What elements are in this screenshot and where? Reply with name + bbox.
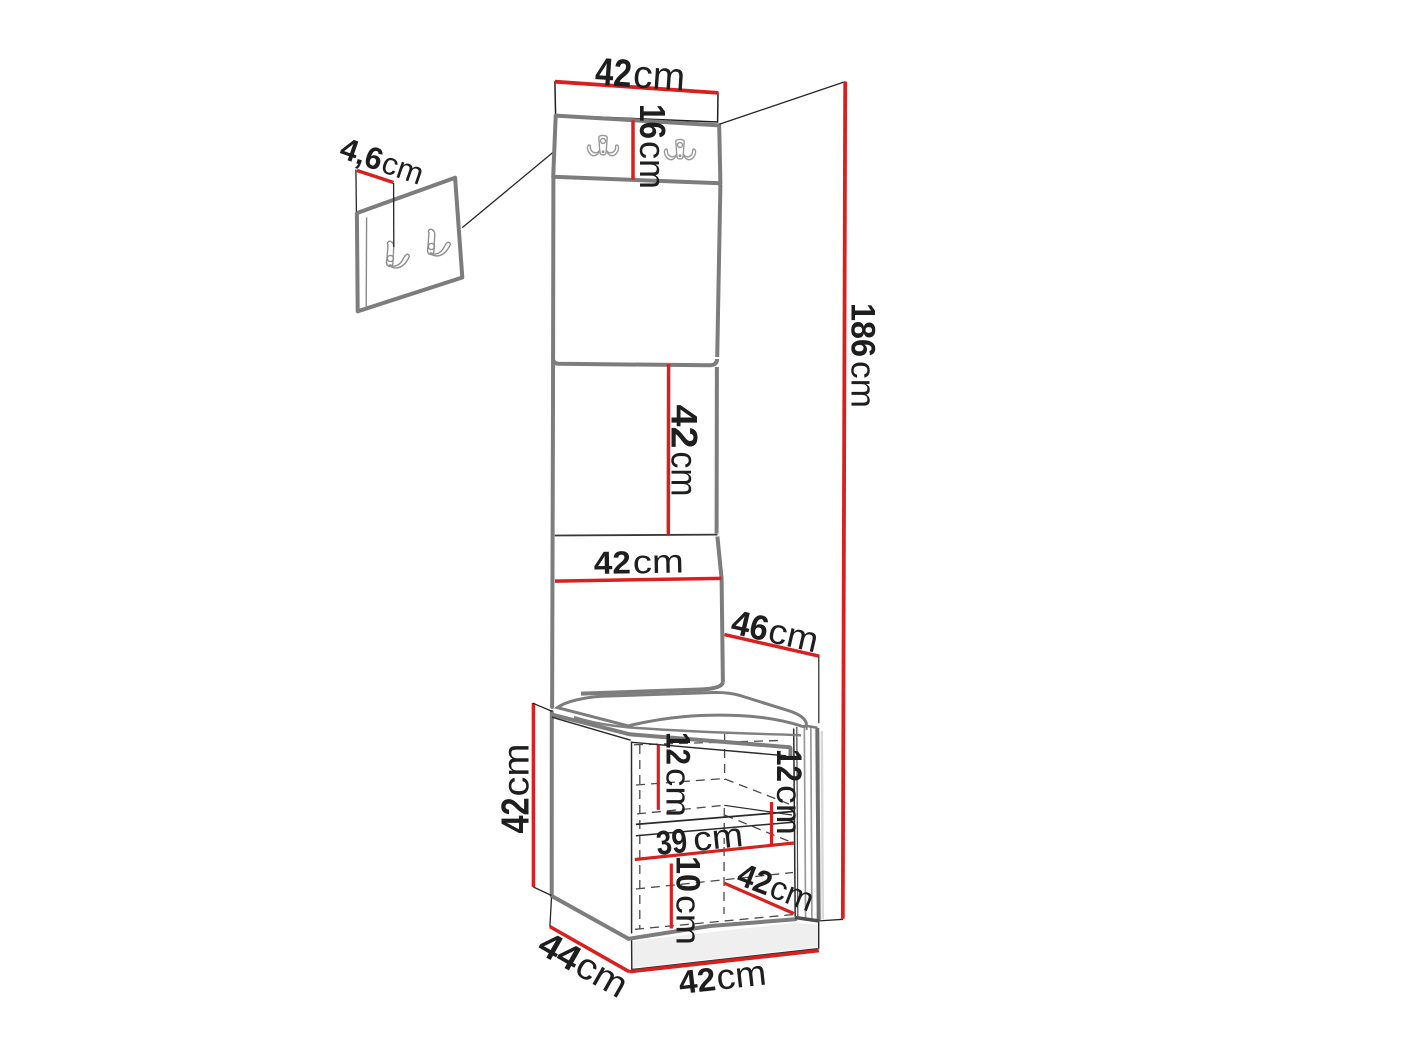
- svg-text:16cm: 16cm: [632, 104, 673, 189]
- svg-text:46cm: 46cm: [728, 603, 822, 661]
- svg-text:10cm: 10cm: [669, 856, 707, 945]
- svg-text:42cm: 42cm: [593, 542, 684, 581]
- svg-text:42cm: 42cm: [732, 855, 819, 918]
- svg-text:4,6cm: 4,6cm: [336, 131, 429, 192]
- svg-text:12cm: 12cm: [658, 732, 696, 817]
- svg-text:12cm: 12cm: [769, 749, 808, 835]
- svg-text:42cm: 42cm: [594, 51, 687, 100]
- svg-text:42cm: 42cm: [494, 744, 537, 834]
- svg-text:186cm: 186cm: [844, 303, 882, 408]
